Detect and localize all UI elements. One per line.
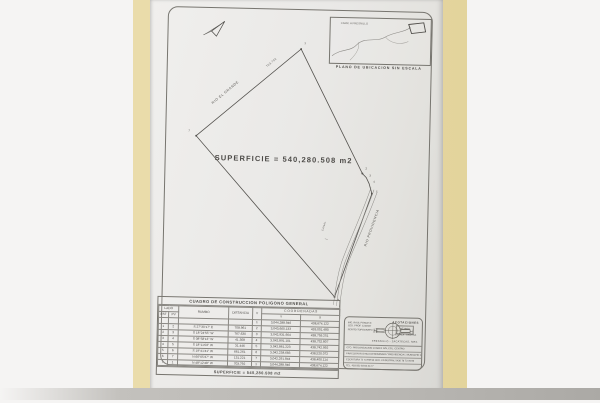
inset-map: CARR. A FRESNILLO [329, 17, 432, 66]
col-v: V [253, 308, 262, 320]
logo-letter-left: H [373, 329, 377, 335]
col-rumbo: RUMBO [179, 306, 229, 319]
logo-seal: H H [373, 321, 413, 341]
location-line: FRESNILLO - ZACATECAS, MEX. [372, 340, 419, 344]
inset-map-canvas: CARR. A FRESNILLO [330, 18, 431, 65]
vertex-ticks [192, 46, 376, 298]
river-lines [323, 187, 377, 308]
table-surface-shadow [0, 388, 600, 400]
vertex-label-5: 5 [376, 190, 378, 194]
inset-road-label: CARR. A FRESNILLO [341, 21, 369, 26]
col-distancia: DISTANCIA [229, 307, 253, 320]
vertex-label-4: 4 [373, 180, 375, 184]
drawing-area: CARR. A FRESNILLO PLANO DE UBICACION SIN… [145, 0, 447, 403]
title-block: ACOTACIONES METROS ESCALA : GRAFICA ING.… [343, 316, 423, 371]
parcel-polygon [193, 47, 376, 298]
construction-table: CUADRO DE CONSTRUCCION POLIGONO GENERAL … [156, 296, 341, 379]
vertex-label-3: 3 [369, 174, 371, 178]
vertex-label-7: 7 [188, 129, 190, 133]
inset-parcel [409, 23, 426, 34]
vertex-label-1: 1 [304, 41, 306, 45]
logo-letter-right: H [409, 330, 413, 336]
vertex-label-2: 2 [365, 167, 367, 171]
north-arrow-icon [203, 21, 224, 36]
surveyor-lines: ING. RAUL PONCE R. CED. PROF. 1234567 PE… [348, 321, 374, 332]
detail-lines: CTO. PROLONGACION JUAREZ S/N, COL. CENTR… [344, 344, 422, 370]
